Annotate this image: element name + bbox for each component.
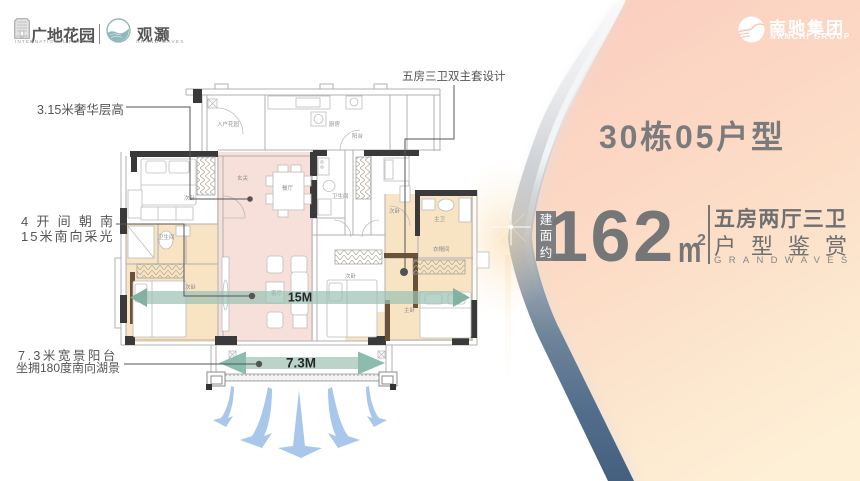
svg-text:次卧: 次卧 xyxy=(345,272,357,280)
svg-text:阳台: 阳台 xyxy=(352,132,364,140)
svg-text:衣帽间: 衣帽间 xyxy=(433,245,450,253)
svg-text:餐厅: 餐厅 xyxy=(282,184,294,192)
svg-text:卫生间: 卫生间 xyxy=(332,192,349,200)
svg-text:主卫: 主卫 xyxy=(434,215,446,223)
svg-text:次卧: 次卧 xyxy=(185,283,197,291)
svg-text:入户花园: 入户花园 xyxy=(217,120,240,128)
svg-text:厨房: 厨房 xyxy=(329,120,341,128)
svg-text:15M: 15M xyxy=(288,291,312,305)
svg-text:主卧: 主卧 xyxy=(404,306,416,314)
svg-text:玄关: 玄关 xyxy=(237,174,249,182)
svg-text:次卧: 次卧 xyxy=(389,207,401,215)
svg-text:7.3M: 7.3M xyxy=(286,356,316,371)
svg-text:卫生间: 卫生间 xyxy=(158,233,175,241)
